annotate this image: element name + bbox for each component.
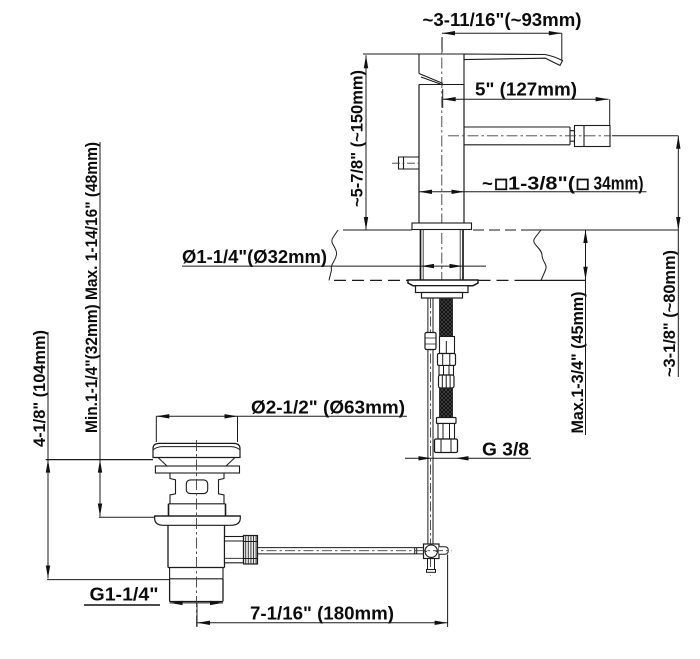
svg-text:34mm): 34mm) <box>594 173 644 194</box>
svg-text:~3-11/16"(~93mm): ~3-11/16"(~93mm) <box>423 9 582 30</box>
svg-text:Ø1-1/4"(Ø32mm): Ø1-1/4"(Ø32mm) <box>182 246 327 267</box>
svg-text:4-1/8" (104mm): 4-1/8" (104mm) <box>31 330 49 447</box>
svg-text:~3-1/8" (~80mm): ~3-1/8" (~80mm) <box>661 250 679 377</box>
svg-text:Min.1-1/4"(32mm) Max. 1-14/16": Min.1-1/4"(32mm) Max. 1-14/16" (48mm) <box>83 142 101 433</box>
svg-text:7-1/16" (180mm): 7-1/16" (180mm) <box>250 603 394 624</box>
svg-text:G1-1/4": G1-1/4" <box>90 584 159 605</box>
svg-text:G 3/8: G 3/8 <box>482 439 529 460</box>
svg-text:5" (127mm): 5" (127mm) <box>475 79 577 100</box>
svg-text:~5-7/8" (~150mm): ~5-7/8" (~150mm) <box>349 70 367 207</box>
svg-text:1-3/8"(: 1-3/8"( <box>508 173 576 194</box>
svg-text:Ø2-1/2" (Ø63mm): Ø2-1/2" (Ø63mm) <box>251 397 405 418</box>
svg-text:Max.1-3/4" (45mm): Max.1-3/4" (45mm) <box>569 292 587 434</box>
svg-text:~: ~ <box>482 173 493 194</box>
